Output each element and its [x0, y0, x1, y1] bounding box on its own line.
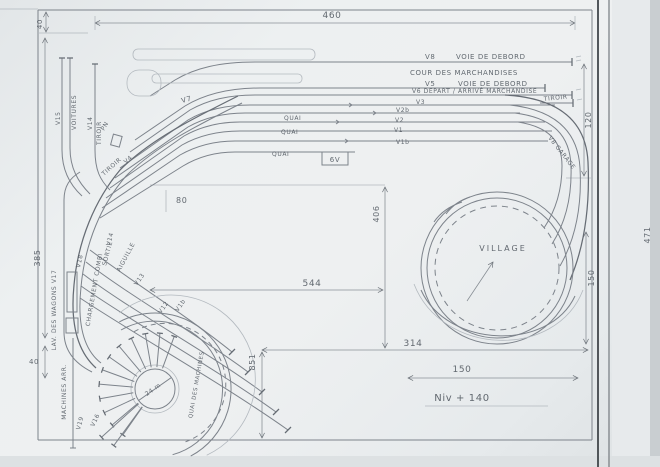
- label-v2: V2: [395, 117, 404, 124]
- label-v4: V4: [123, 154, 134, 165]
- label-v8: V8: [425, 53, 435, 61]
- label-v19: V19: [75, 416, 85, 431]
- label-sortie: SORTIE: [101, 240, 114, 266]
- label-v12: V12: [157, 300, 171, 315]
- label-v2b: V2b: [396, 107, 410, 114]
- label-quai-1: QUAI: [284, 115, 301, 122]
- label-v8-name: VOIE DE DEBORD: [456, 53, 526, 61]
- dim-sheet-height: 471: [643, 226, 652, 243]
- label-v1: V1: [394, 127, 403, 134]
- dim-center-height: 406: [372, 205, 381, 222]
- label-v5-name: VOIE DE DEBORD: [458, 80, 528, 88]
- label-v5: V5: [425, 80, 435, 88]
- dim-bottom-height: 851: [248, 353, 257, 370]
- village-loop: [414, 95, 588, 344]
- dim-loop-right-height: 150: [587, 269, 596, 286]
- label-voitures: VOITURES: [71, 95, 78, 130]
- turntable-depot: [99, 295, 255, 456]
- dim-top-left-margin: 40: [36, 19, 44, 29]
- label-quai-3: QUAI: [272, 151, 289, 158]
- label-tiroir-right: TIROIR: [542, 94, 567, 104]
- label-village: VILLAGE: [479, 244, 527, 253]
- label-v15: V15: [55, 111, 62, 125]
- track-plan-svg: 460 40 385 40 120 150 406 544 851 314 15…: [0, 0, 660, 467]
- label-v3: V3: [416, 99, 425, 106]
- scanned-plan-sheet: 460 40 385 40 120 150 406 544 851 314 15…: [0, 0, 660, 467]
- label-v7: V7: [180, 94, 192, 104]
- dim-track-gap: 80: [176, 196, 187, 205]
- dim-center-width: 544: [303, 279, 322, 289]
- label-quai-machines: QUAI DES MACHINES: [188, 351, 206, 419]
- label-6v: 6V: [330, 156, 340, 164]
- dim-loop-diameter: 150: [453, 365, 472, 375]
- label-aiguille: AIGUILLE: [116, 241, 137, 273]
- label-quai-2: QUAI: [281, 129, 298, 136]
- labels: 460 40 385 40 120 150 406 544 851 314 15…: [29, 11, 652, 431]
- label-machines: MACHINES ARR.: [61, 364, 68, 420]
- dim-top-width: 460: [323, 11, 342, 21]
- label-v6-name: V6 DEPART / ARRIVÉ MARCHANDISE: [412, 87, 537, 95]
- label-yard: COUR DES MARCHANDISES: [410, 69, 518, 77]
- label-turntable-diameter: 24 m: [144, 382, 163, 398]
- label-v1b: V1b: [396, 139, 410, 146]
- dim-bottom-left-margin: 40: [29, 358, 39, 366]
- dim-left-height: 385: [33, 249, 42, 266]
- label-v1b-2: V1b: [174, 298, 187, 313]
- label-v13: V13: [133, 272, 147, 287]
- dim-right-height: 120: [584, 111, 593, 128]
- dim-loop-width: 314: [404, 339, 423, 349]
- label-v14: V14: [87, 116, 94, 130]
- pn-crossing-box: [111, 134, 123, 147]
- label-v16: V16: [89, 413, 101, 428]
- note-level: Niv + 140: [434, 393, 489, 404]
- label-lavage-wagons: LAV. DES WAGONS V17: [51, 270, 58, 351]
